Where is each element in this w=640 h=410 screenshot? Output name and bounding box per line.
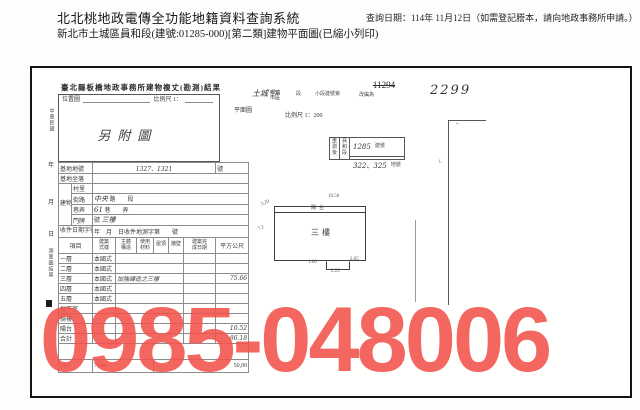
col-wall: 牆壁 bbox=[169, 238, 184, 254]
door-group-label: 建物門牌 bbox=[59, 184, 72, 226]
city-handwriting: 土城 bbox=[252, 88, 268, 99]
table-row: 門牌 號 三樓 bbox=[59, 215, 249, 226]
table-row: 收件日期字號 年 月 日收件地測字第 號 bbox=[59, 226, 249, 238]
table-row: 巷弄 61 巷 弄 bbox=[59, 205, 249, 215]
floor-row: 地下室 bbox=[59, 304, 249, 314]
floor-row: 三層 本國式 加強磚造之三樓 75.66 bbox=[59, 274, 249, 284]
location-box-label: 位置圖 bbox=[62, 97, 80, 104]
floor-note bbox=[116, 294, 184, 304]
boundary-line bbox=[415, 220, 416, 302]
see-attached-note: 另附圖 bbox=[97, 125, 157, 144]
old-building-number: 11294 bbox=[354, 80, 414, 90]
floor-style: 本國式 bbox=[93, 264, 116, 274]
floor-area: 75.66 bbox=[216, 274, 249, 284]
floor-row: 四層 本國式 bbox=[59, 284, 249, 294]
remarks-cell bbox=[59, 344, 249, 360]
floor-area bbox=[216, 294, 249, 304]
floor-label-3f: 三樓 bbox=[311, 227, 333, 238]
floor-area bbox=[216, 264, 249, 274]
dim-notch-left: 1.06 bbox=[308, 260, 317, 265]
floor-label: 五層 bbox=[59, 294, 93, 304]
floor-label: 地下室 bbox=[59, 304, 93, 314]
plan-scale: 比例尺 1：200 bbox=[285, 113, 323, 120]
floor-area bbox=[216, 254, 249, 264]
lane-handwriting: 61 bbox=[94, 206, 103, 214]
form-title: 臺北縣板橋地政事務所建物複丈(勘測)結果 bbox=[56, 82, 226, 93]
col-area-sqm: 平方公尺 bbox=[216, 238, 249, 254]
dim-top: 10.56 bbox=[328, 194, 339, 199]
boundary-line bbox=[448, 120, 486, 121]
floor-area bbox=[216, 284, 249, 294]
floor-style: 本國式 bbox=[93, 294, 116, 304]
floor-area bbox=[216, 314, 249, 324]
survey-tick: * bbox=[456, 123, 459, 129]
table-row: 基地地號 1327、1321 號 bbox=[59, 163, 249, 174]
receipt-label: 收件日期字號 bbox=[59, 226, 93, 238]
floor-note bbox=[116, 264, 184, 274]
floor-note bbox=[116, 334, 184, 344]
col-item: 項目 bbox=[59, 238, 93, 254]
receipt-text: 年 月 日收件地測字第 號 bbox=[93, 226, 249, 238]
floor-label: 二層 bbox=[59, 264, 93, 274]
ink-blot-mark bbox=[46, 300, 52, 307]
no-unit: 號 bbox=[94, 218, 100, 224]
dim-left-a: 3.20 bbox=[260, 199, 270, 207]
floor-style bbox=[93, 304, 116, 314]
floor-note bbox=[116, 324, 184, 334]
door-lane-value: 61 巷 弄 bbox=[93, 205, 249, 215]
location-sketch-box: 位置圖 比例尺 1： 另附圖 bbox=[58, 94, 220, 162]
new-building-number: 2299 bbox=[430, 83, 471, 98]
floor-label: 三層 bbox=[59, 274, 93, 284]
dim-notch-bottom: 2.25 bbox=[331, 269, 340, 274]
floor-row: 五層 本國式 bbox=[59, 294, 249, 304]
floor-note: 加強磚造之三樓 bbox=[116, 274, 184, 284]
floor-area: 86.18 bbox=[216, 334, 249, 344]
floor-note bbox=[116, 304, 184, 314]
site-seat-value bbox=[93, 174, 249, 184]
resurvey-col1: 重測後 bbox=[330, 138, 340, 159]
scanned-document-frame: 臺北縣板橋地政事務所建物複丈(勘測)結果 平面圖 位置圖 比例尺 1： 另附圖 … bbox=[30, 66, 632, 398]
floor-label: 騎樓 bbox=[59, 314, 93, 324]
resurvey-box: 重測後 員和段 1285 建號 322、325 地號 bbox=[329, 137, 405, 160]
margin-result-label: 測量圖結果 bbox=[47, 248, 53, 278]
site-lot-label: 基地地號 bbox=[59, 163, 93, 174]
document-subtitle: 新北市土城區員和段(建號:01285-000)[第二類]建物平面圖(已縮小列印) bbox=[57, 26, 378, 41]
floor-style: 本國式 bbox=[93, 254, 116, 264]
col-structure: 主體構造 bbox=[116, 238, 137, 254]
floor-style: 本國式 bbox=[93, 284, 116, 294]
renumber-label: 改編為 bbox=[359, 93, 374, 99]
dim-notch-right: 2.65 bbox=[350, 257, 359, 262]
floor-style bbox=[93, 334, 116, 344]
scale-blank-label: 比例尺 1： bbox=[153, 97, 182, 104]
door-village-value bbox=[93, 184, 249, 194]
resurvey-col2: 員和段 bbox=[340, 138, 350, 159]
floor-label: 一層 bbox=[59, 254, 93, 264]
floor-row: 陽台 10.52 bbox=[59, 324, 249, 334]
no-handwriting: 三樓 bbox=[102, 216, 116, 224]
col-material: 使用材料 bbox=[137, 238, 154, 254]
underline-rule bbox=[185, 97, 213, 103]
survey-tick: L bbox=[439, 160, 442, 166]
query-result-page: 北北桃地政電傳全功能地籍資料查詢系統 查詢日期：114年 11月12日（如需登記… bbox=[0, 0, 640, 410]
table-row: 建物門牌 村里 bbox=[59, 184, 249, 194]
site-lot-value: 1327、1321 bbox=[93, 163, 216, 174]
resurvey-lot-no: 322、325 地號 bbox=[350, 157, 404, 175]
table-row: 街路 中央 路 段 bbox=[59, 194, 249, 205]
door-no-value: 號 三樓 bbox=[93, 215, 249, 226]
table-row bbox=[59, 344, 249, 360]
dim-left-b: 7.2 bbox=[257, 225, 265, 232]
margin-day-label: 日 bbox=[48, 232, 54, 239]
table-footer-row: 210 7mm 50,00 bbox=[59, 360, 249, 373]
table-row: 基地坐落 bbox=[59, 174, 249, 184]
resurvey-building-no: 1285 建號 bbox=[350, 138, 404, 157]
underline-rule bbox=[83, 97, 150, 103]
query-date: 查詢日期：114年 11月12日（如需登記謄本，請向地政事務所申請。） bbox=[366, 11, 638, 24]
street-unit: 路 段 bbox=[110, 197, 134, 203]
door-street-value: 中央 路 段 bbox=[93, 194, 249, 205]
boundary-line bbox=[448, 120, 449, 305]
district-label: 鄉鎮市區 bbox=[270, 87, 281, 105]
door-street-label: 街路 bbox=[72, 194, 93, 205]
section-label: 段 bbox=[296, 92, 301, 98]
floor-style: 本國式 bbox=[93, 274, 116, 284]
col-completion-date: 建築完成日期 bbox=[184, 238, 216, 254]
balcony-label: 陽台 bbox=[311, 206, 327, 212]
col-style: 建築式樣 bbox=[93, 238, 116, 254]
floor-label: 合計 bbox=[59, 334, 93, 344]
floor-area: 10.52 bbox=[216, 324, 249, 334]
footer-right: 50,00 bbox=[154, 360, 249, 373]
floor-note bbox=[116, 314, 184, 324]
system-title: 北北桃地政電傳全功能地籍資料查詢系統 bbox=[57, 8, 300, 27]
floor-style bbox=[93, 314, 116, 324]
floor-label: 陽台 bbox=[59, 324, 93, 334]
floor-note bbox=[116, 284, 184, 294]
subsection-label: 小段建號第 bbox=[315, 92, 340, 98]
table-header-row: 項目 建築式樣 主體構造 使用材料 屋頂 牆壁 建築完成日期 平方公尺 bbox=[59, 238, 249, 254]
footer-mid: 7mm bbox=[93, 360, 154, 373]
margin-era-label: 中華民國 bbox=[48, 108, 54, 132]
door-village-label: 村里 bbox=[72, 184, 93, 194]
footer-left: 210 bbox=[59, 360, 93, 373]
building-outline: 陽台 三樓 bbox=[274, 206, 366, 261]
site-lot-unit: 號 bbox=[216, 163, 249, 174]
floor-note bbox=[116, 254, 184, 264]
plan-section-label: 平面圖 bbox=[234, 108, 252, 115]
col-roof: 屋頂 bbox=[154, 238, 169, 254]
floor-area bbox=[216, 304, 249, 314]
lane-unit: 巷 弄 bbox=[104, 208, 128, 214]
street-handwriting: 中央 bbox=[94, 195, 108, 203]
door-lane-label: 巷弄 bbox=[72, 205, 93, 215]
survey-result-table: 基地地號 1327、1321 號 基地坐落 建物門牌 村里 街路 中央 路 段 bbox=[58, 162, 249, 373]
door-no-label: 門牌 bbox=[72, 215, 93, 226]
floor-style bbox=[93, 324, 116, 334]
floor-row: 一層 本國式 bbox=[59, 254, 249, 264]
floor-row: 合計 86.18 bbox=[59, 334, 249, 344]
floor-label: 四層 bbox=[59, 284, 93, 294]
margin-year-label: 年 bbox=[48, 163, 54, 170]
site-seat-label: 基地坐落 bbox=[59, 174, 93, 184]
floor-row: 二層 本國式 bbox=[59, 264, 249, 274]
floor-row: 騎樓 bbox=[59, 314, 249, 324]
margin-month-label: 月 bbox=[48, 200, 54, 207]
